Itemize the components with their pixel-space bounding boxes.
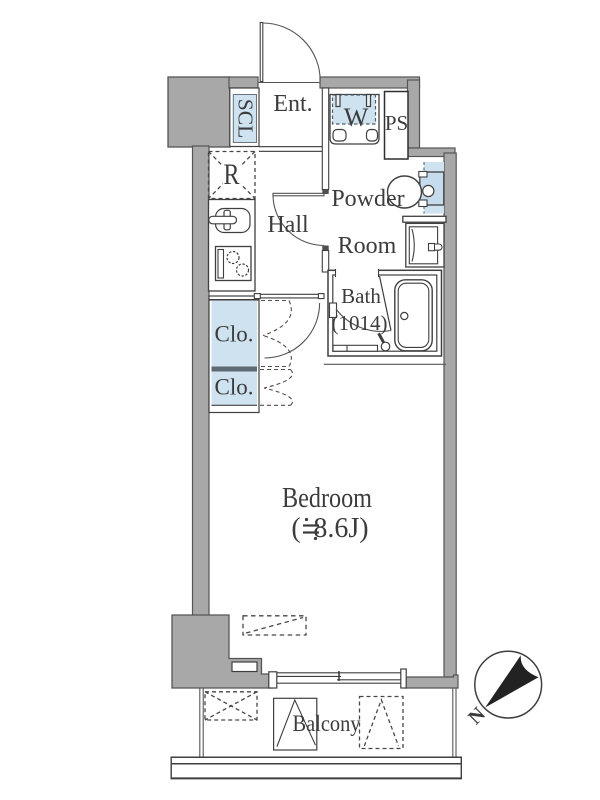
svg-text:Bedroom: Bedroom — [282, 483, 372, 514]
svg-text:(1014): (1014) — [332, 311, 388, 335]
svg-text:R: R — [224, 158, 240, 191]
svg-text:W: W — [344, 103, 369, 132]
svg-text:(: ( — [291, 513, 300, 544]
svg-text:Balcony: Balcony — [293, 711, 361, 736]
svg-text:Bath: Bath — [341, 284, 381, 308]
svg-text:8.6J): 8.6J) — [313, 513, 368, 544]
svg-text:Powder: Powder — [331, 186, 404, 212]
svg-text:Hall: Hall — [267, 212, 309, 238]
svg-text:SCL: SCL — [234, 99, 258, 138]
svg-text:Room: Room — [338, 233, 397, 259]
svg-text:Clo.: Clo. — [215, 322, 254, 347]
svg-text:Ent.: Ent. — [273, 91, 312, 117]
svg-text:PS: PS — [385, 111, 408, 135]
svg-text:Clo.: Clo. — [215, 375, 254, 400]
